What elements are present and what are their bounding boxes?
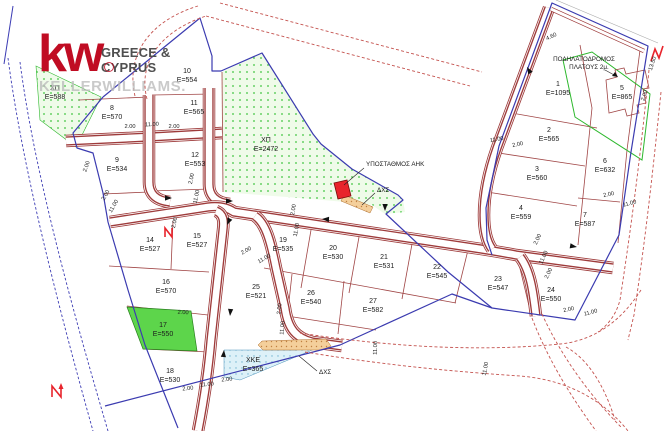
- dimension-label: 2.00: [563, 306, 575, 314]
- plot-number: 24: [547, 287, 555, 294]
- plot-area: E=1095: [546, 90, 570, 97]
- plot-number: 20: [329, 245, 337, 252]
- plot-area: E=565: [184, 109, 205, 116]
- plot-number: 14: [146, 237, 154, 244]
- plot-area: E=865: [612, 94, 633, 101]
- annotation-label: ΔΧΣ: [319, 369, 331, 376]
- area-label: ΧΚΕ: [246, 357, 260, 364]
- plot-number: 3: [535, 166, 539, 173]
- plot-area: E=530: [160, 377, 181, 384]
- annotation-label: ΥΠΟΣΤΑΘΜΟΣ ΑΗΚ: [366, 161, 425, 168]
- plot-area: E=632: [595, 167, 616, 174]
- dimension-label: 2.00: [603, 191, 615, 199]
- plot-area: E=534: [107, 166, 128, 173]
- plot-number: 11: [190, 100, 197, 107]
- plot-area: E=540: [301, 299, 322, 306]
- plot-number: 22: [433, 264, 441, 271]
- dimension-label: 2.00: [182, 386, 194, 393]
- plot-area: E=535: [273, 246, 294, 253]
- dimension-label: 2.00: [240, 246, 253, 257]
- dimension-label: 11.00: [279, 321, 286, 335]
- area-label: ΧΠ: [50, 85, 60, 92]
- plot-area: E=527: [140, 246, 161, 253]
- plot-area: E=570: [156, 288, 177, 295]
- plot-number: 5: [620, 85, 624, 92]
- dimension-label: 11.00: [373, 341, 379, 355]
- plot-number: 7: [583, 212, 587, 219]
- plot-area: E=560: [527, 175, 548, 182]
- plot-number: 27: [369, 298, 377, 305]
- north-arrow-icon: [52, 383, 64, 397]
- plot-area: E=559: [511, 214, 532, 221]
- plot-number: 4: [519, 205, 523, 212]
- annotation-label: ΠΛΑΤΟΥΣ 2μ.: [569, 64, 609, 71]
- plot-number: 25: [252, 284, 260, 291]
- annotation-label: ΠΟΔΗΛΑΤΟΔΡΟΜΟΣ: [553, 56, 615, 63]
- plot-number: 1: [556, 81, 560, 88]
- area-label: ΧΠ: [261, 137, 271, 144]
- plot-area: E=527: [187, 242, 208, 249]
- plot-number: 16: [162, 279, 170, 286]
- dimension-label: 2.00: [171, 217, 179, 229]
- plot-number: 21: [380, 254, 388, 261]
- plot-area: E=547: [488, 285, 509, 292]
- dimension-label: 2.00: [82, 160, 91, 172]
- annotation-label: ΔΧΣ: [377, 187, 389, 194]
- zigzag-symbol: [165, 228, 172, 237]
- plot-number: 15: [193, 233, 201, 240]
- dimension-label: 2.00: [277, 303, 284, 315]
- plot-number: 9: [115, 157, 119, 164]
- plot-area: E=2472: [254, 146, 278, 153]
- dimension-label: 11.00: [583, 308, 598, 317]
- plot-number: 23: [494, 276, 502, 283]
- dimension-label: 11.00: [200, 381, 214, 388]
- dimension-label: 11.00: [108, 199, 120, 214]
- dimension-label: 4.60: [545, 32, 558, 42]
- dimension-label: 2.00: [177, 310, 188, 317]
- plot-number: 18: [166, 368, 174, 375]
- dimension-label: 2.00: [188, 173, 196, 185]
- dimension-label: 2.00: [124, 124, 135, 130]
- plot-number: 10: [183, 68, 191, 75]
- plot-area: E=550: [153, 331, 174, 338]
- plot-area: E=545: [427, 273, 448, 280]
- plot-area: E=587: [575, 221, 596, 228]
- plot-area: E=530: [323, 254, 344, 261]
- plot-area: E=550: [541, 296, 562, 303]
- plot-area: E=521: [246, 293, 267, 300]
- plot-area: E=588: [45, 94, 66, 101]
- plot-area: E=365: [243, 366, 264, 373]
- plot-number: 17: [159, 322, 167, 329]
- plot-number: 8: [110, 105, 114, 112]
- site-plan-map: 1E=10952E=5653E=5604E=5595E=8656E=6327E=…: [0, 0, 669, 431]
- plot-area: E=531: [374, 263, 395, 270]
- dimension-label: 11.00: [293, 223, 301, 238]
- dimension-label: 13.50: [648, 56, 658, 71]
- plot-number: 19: [279, 237, 287, 244]
- dimension-label: 11.00: [145, 122, 159, 129]
- dxs-strip-bottom: [258, 339, 331, 350]
- plot-number: 12: [191, 152, 199, 159]
- plot-number: 6: [603, 158, 607, 165]
- site-plan-page: 1E=10952E=5653E=5604E=5595E=8656E=6327E=…: [0, 0, 669, 431]
- plot-number: 26: [307, 290, 315, 297]
- dimension-label: 2.00: [640, 89, 649, 101]
- dxs2-leader: [299, 356, 317, 371]
- dimension-label: 2.00: [512, 141, 524, 149]
- watercourse-lines: [4, 6, 108, 431]
- leader-lines: [299, 70, 618, 371]
- plot-number: 2: [547, 127, 551, 134]
- plot-area: E=582: [363, 307, 384, 314]
- dimension-label: 2.00: [221, 377, 233, 384]
- dimension-label: 2.00: [544, 267, 554, 280]
- plot-area: E=565: [539, 136, 560, 143]
- plot-area: E=570: [102, 114, 123, 121]
- plot-area: E=553: [185, 161, 206, 168]
- dimension-label: 2.00: [168, 124, 179, 130]
- dimension-label: 2.00: [533, 233, 543, 246]
- plot-area: E=554: [177, 77, 198, 84]
- dimension-label: 11.00: [482, 362, 490, 377]
- dimension-label: 2.00: [290, 204, 298, 216]
